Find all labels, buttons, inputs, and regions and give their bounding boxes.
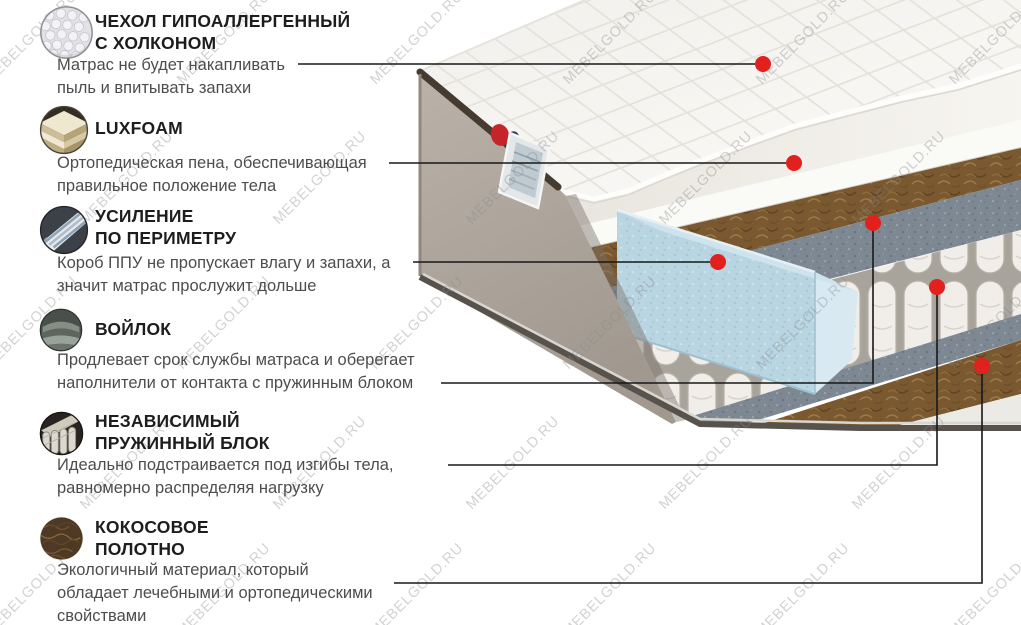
section-description: Продлевает срок службы матраса и оберега…: [57, 349, 415, 395]
section-title: ЧЕХОЛ ГИПОАЛЛЕРГЕННЫЙ С ХОЛКОНОМ: [95, 10, 350, 54]
section-description: Короб ППУ не пропускает влагу и запахи, …: [57, 252, 390, 298]
section-title: КОКОСОВОЕ ПОЛОТНО: [95, 516, 209, 560]
pocket-springs-icon: [38, 410, 85, 457]
felt-icon: [38, 307, 84, 353]
connector-springs: [448, 295, 937, 465]
marker-dot-luxfoam: [786, 155, 802, 171]
section-title: ВОЙЛОК: [95, 318, 171, 340]
section-description: Идеально подстраивается под изгибы тела,…: [57, 454, 393, 500]
connector-felt: [441, 231, 873, 383]
marker-dot-cover: [755, 56, 771, 72]
section-perimeter: УСИЛЕНИЕ ПО ПЕРИМЕТРУ Короб ППУ не пропу…: [38, 204, 468, 304]
section-title: LUXFOAM: [95, 117, 183, 139]
section-description: Матрас не будет накапливать пыль и впиты…: [57, 54, 285, 100]
coconut-coir-icon: [38, 515, 85, 562]
marker-dot-perimeter: [710, 254, 726, 270]
marker-dot-felt: [865, 215, 881, 231]
section-springs: НЕЗАВИСИМЫЙ ПРУЖИННЫЙ БЛОК Идеально подс…: [38, 408, 468, 508]
section-description: Ортопедическая пена, обеспечивающая прав…: [57, 152, 367, 198]
legend-column: ЧЕХОЛ ГИПОАЛЛЕРГЕННЫЙ С ХОЛКОНОМ Матрас …: [0, 0, 470, 625]
foam-layers-icon: [38, 104, 90, 156]
section-coconut: КОКОСОВОЕ ПОЛОТНО Экологичный материал, …: [38, 513, 468, 625]
marker-dot-springs: [929, 279, 945, 295]
connector-coconut: [394, 374, 982, 583]
mattress-infographic: MEBELGOLD.RUMEBELGOLD.RUMEBELGOLD.RUMEBE…: [0, 0, 1021, 625]
section-title: УСИЛЕНИЕ ПО ПЕРИМЕТРУ: [95, 205, 236, 249]
section-luxfoam: LUXFOAM Ортопедическая пена, обеспечиваю…: [38, 104, 468, 200]
section-cover: ЧЕХОЛ ГИПОАЛЛЕРГЕННЫЙ С ХОЛКОНОМ Матрас …: [38, 4, 468, 100]
section-felt: ВОЙЛОК Продлевает срок службы матраса и …: [38, 305, 468, 403]
perimeter-foam-icon: [38, 204, 90, 256]
quilted-cover-icon: [38, 4, 95, 61]
marker-dot-coconut: [974, 358, 990, 374]
section-description: Экологичный материал, который обладает л…: [57, 559, 373, 625]
section-title: НЕЗАВИСИМЫЙ ПРУЖИННЫЙ БЛОК: [95, 410, 270, 454]
